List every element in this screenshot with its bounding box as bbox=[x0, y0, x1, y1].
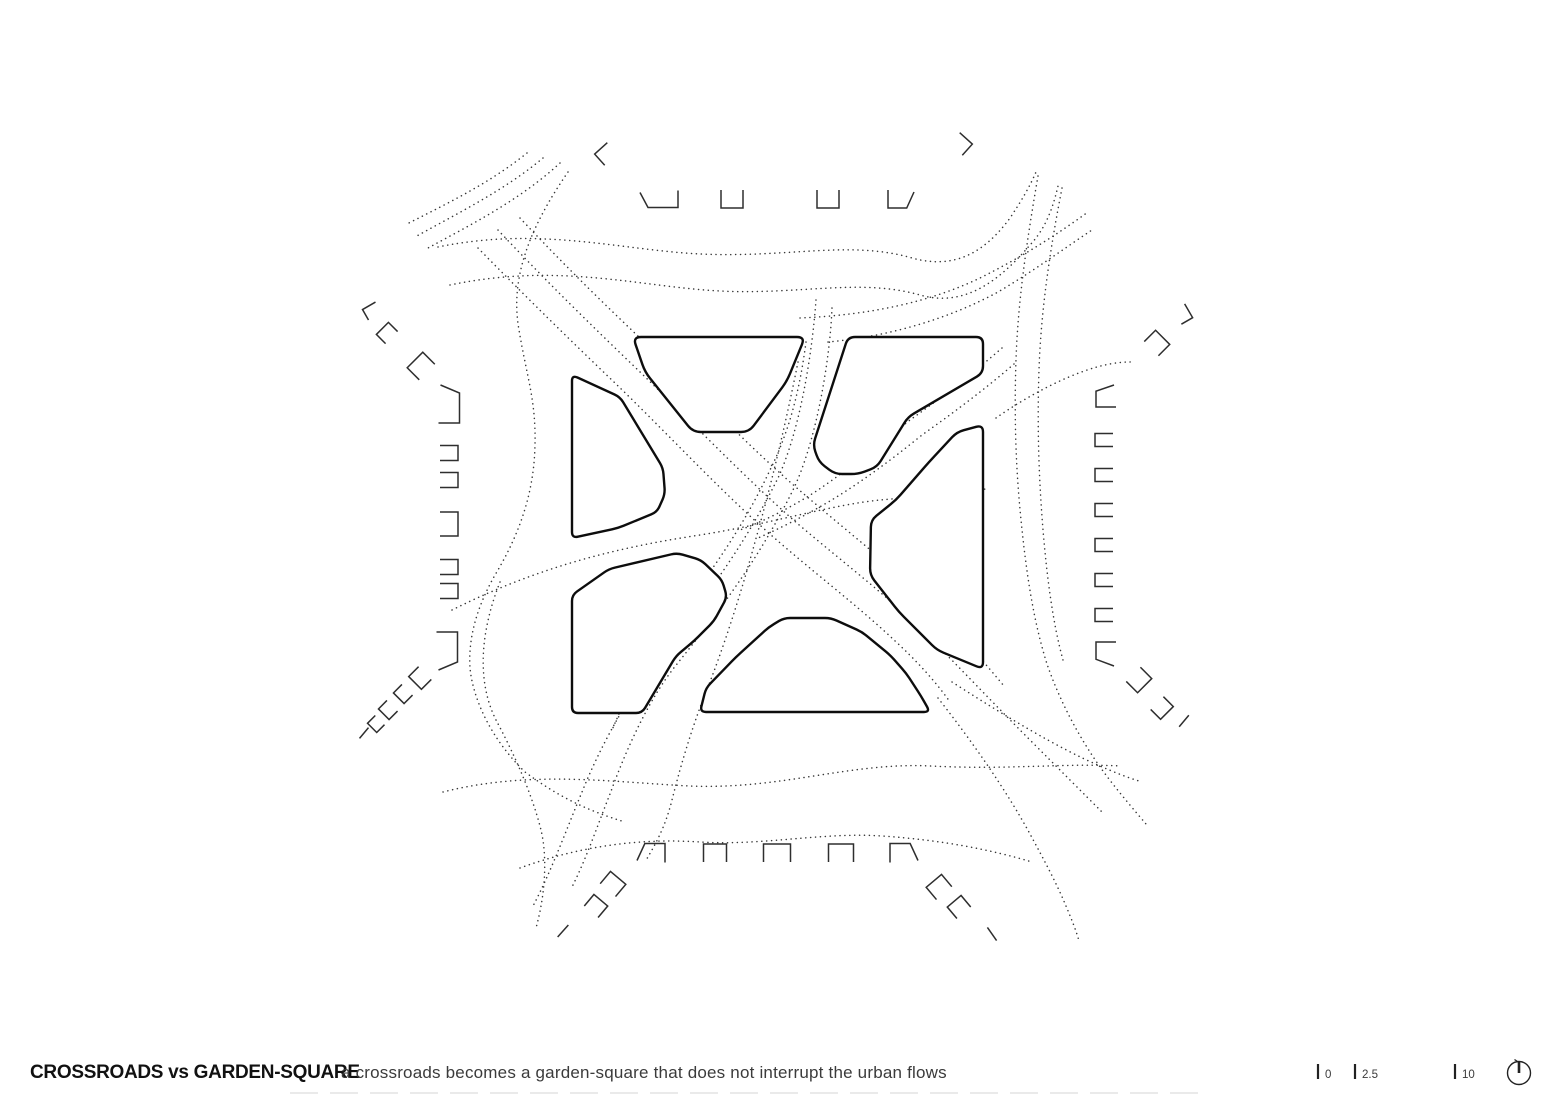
building-footprint bbox=[764, 844, 791, 862]
building-footprint bbox=[440, 560, 458, 575]
flow-path bbox=[938, 698, 1079, 941]
building-footprint bbox=[439, 385, 460, 423]
building-footprint bbox=[640, 191, 678, 208]
building-footprint bbox=[600, 871, 626, 896]
plan-drawing: 02.510 bbox=[0, 0, 1556, 1100]
garden-island bbox=[572, 377, 665, 537]
building-footprint bbox=[1173, 304, 1192, 324]
garden-island bbox=[572, 554, 726, 713]
building-footprint bbox=[1096, 385, 1116, 407]
building-footprint bbox=[926, 874, 952, 899]
building-footprint bbox=[440, 446, 458, 461]
building-footprint bbox=[1126, 667, 1151, 692]
building-footprint bbox=[393, 684, 412, 703]
flow-path bbox=[1015, 176, 1146, 824]
building-footprints bbox=[360, 133, 1193, 941]
building-footprint bbox=[440, 512, 458, 536]
garden-island bbox=[635, 337, 803, 432]
garden-island bbox=[870, 426, 983, 667]
flow-path bbox=[483, 582, 545, 928]
urban-flow-lines bbox=[405, 153, 1146, 941]
building-footprint bbox=[407, 352, 435, 380]
building-footprint bbox=[558, 925, 569, 937]
flow-path bbox=[415, 158, 543, 237]
sheet-title: CROSSROADS vs GARDEN-SQUARE bbox=[30, 1062, 360, 1084]
flow-path bbox=[520, 835, 1032, 868]
flow-path bbox=[828, 230, 1092, 342]
building-footprint bbox=[440, 584, 458, 599]
building-footprint bbox=[1179, 715, 1189, 726]
building-footprint bbox=[1095, 609, 1113, 622]
flow-path bbox=[478, 248, 950, 702]
flow-path bbox=[800, 212, 1088, 318]
building-footprint bbox=[1144, 330, 1169, 355]
building-footprint bbox=[1096, 642, 1116, 666]
building-footprint bbox=[584, 894, 607, 917]
building-footprint bbox=[363, 302, 382, 320]
building-footprint bbox=[409, 667, 432, 690]
building-footprint bbox=[1095, 469, 1113, 482]
building-footprint bbox=[637, 844, 665, 863]
building-footprint bbox=[368, 716, 385, 733]
building-footprint bbox=[437, 632, 458, 670]
building-footprint bbox=[1095, 434, 1113, 447]
building-footprint bbox=[704, 844, 727, 862]
building-footprint bbox=[1095, 504, 1113, 517]
building-footprint bbox=[721, 190, 743, 208]
flow-path bbox=[443, 765, 1121, 792]
building-footprint bbox=[360, 728, 369, 739]
building-footprint bbox=[888, 190, 914, 208]
building-footprint bbox=[829, 844, 854, 862]
sheet-caption: a crossroads becomes a garden-square tha… bbox=[341, 1063, 947, 1083]
building-footprint bbox=[595, 143, 618, 166]
building-footprint bbox=[1151, 697, 1174, 720]
building-footprint bbox=[947, 895, 970, 918]
flow-path bbox=[438, 172, 1036, 262]
building-footprint bbox=[376, 322, 397, 343]
flow-path bbox=[428, 163, 560, 248]
flow-path bbox=[405, 153, 527, 225]
garden-islands bbox=[572, 337, 983, 713]
sheet: 02.510 CROSSROADS vs GARDEN-SQUARE a cro… bbox=[0, 0, 1556, 1100]
building-footprint bbox=[950, 133, 973, 156]
building-footprint bbox=[440, 473, 458, 488]
flow-path bbox=[450, 186, 1058, 298]
building-footprint bbox=[378, 700, 397, 719]
flow-path bbox=[952, 682, 1139, 781]
building-footprint bbox=[817, 190, 839, 208]
garden-island bbox=[701, 618, 928, 712]
building-footprint bbox=[890, 844, 918, 863]
building-footprint bbox=[987, 927, 996, 940]
caption-bar: CROSSROADS vs GARDEN-SQUARE a crossroads… bbox=[0, 1058, 1556, 1088]
building-footprint bbox=[1095, 539, 1113, 552]
building-footprint bbox=[1095, 574, 1113, 587]
